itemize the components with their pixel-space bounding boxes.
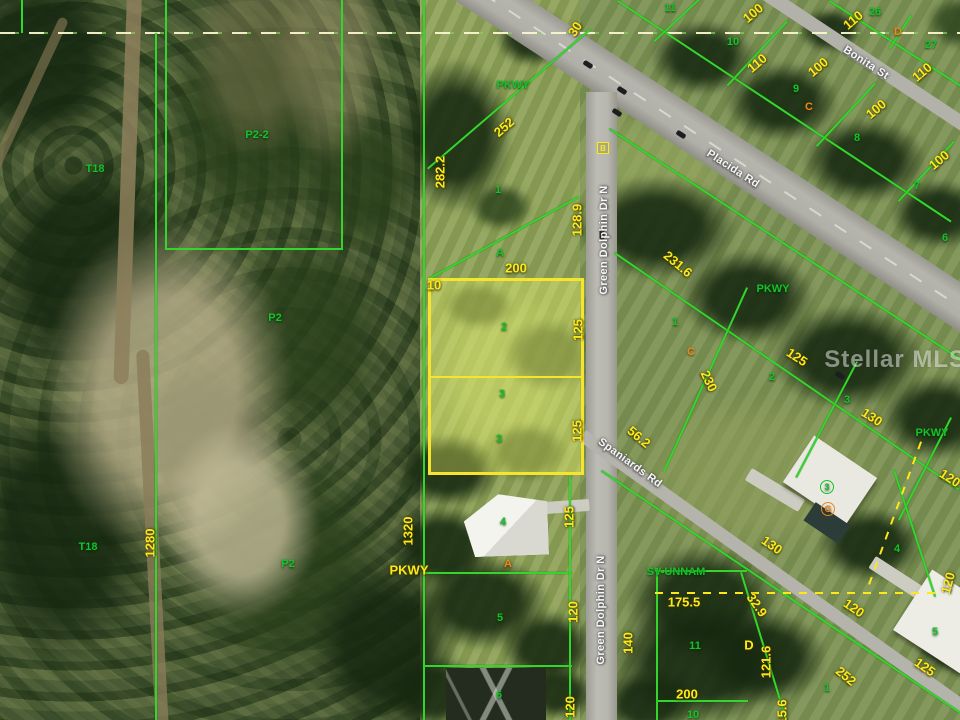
parcel-label-pkwy: PKWY [916, 427, 949, 439]
dimension-label-121.6: 121.6 [759, 646, 774, 679]
road-label-green-dolphin-dr-n: Green Dolphin Dr N [595, 555, 607, 664]
dimension-label-1280: 1280 [143, 529, 158, 558]
dimension-label-1320: 1320 [401, 517, 416, 546]
aerial-parcel-map: Placida RdBonita StGreen Dolphin Dr NGre… [0, 0, 960, 720]
parcel-label-pkwy: PKWY [497, 79, 530, 91]
parcel-label-2: 2 [769, 371, 775, 383]
parcel-boundary-line [155, 33, 157, 720]
parcel-label-t18: T18 [86, 163, 105, 175]
parcel-label-1: 1 [824, 682, 830, 694]
road-marker-b: B [597, 142, 609, 154]
parcel-label-11: 11 [664, 2, 676, 14]
parcel-label-3: 3 [844, 394, 850, 406]
section-line-dashed [0, 32, 960, 34]
plat-marker-c: C [687, 346, 695, 358]
parcel-label-3: 3 [496, 433, 502, 445]
parcel-label-11: 11 [689, 640, 701, 652]
plat-marker-g: G [821, 502, 835, 516]
dimension-label-120: 120 [563, 696, 578, 718]
parcel-label-1: 1 [495, 184, 501, 196]
plat-marker-a: A [504, 558, 512, 570]
parcel-label-t18: T18 [79, 541, 98, 553]
stellar-mls-watermark: Stellar MLS [824, 346, 960, 374]
parcel-label-4: 4 [894, 543, 900, 555]
dimension-label-125: 125 [562, 506, 577, 528]
dimension-label-125: 125 [570, 420, 585, 442]
dimension-label-175.5: 175.5 [668, 595, 701, 610]
parcel-label-pkwy: PKWY [757, 283, 790, 295]
dimension-label-128.9: 128.9 [570, 204, 585, 237]
dimension-label-120: 120 [566, 601, 581, 623]
parcel-label-3: 3 [820, 480, 834, 494]
parcel-outline-p2-2 [165, 0, 343, 250]
parcel-label-1: 1 [672, 316, 678, 328]
dimension-label-282.2: 282.2 [433, 156, 448, 189]
parcel-boundary-line [656, 568, 658, 720]
parcel-label-6: 6 [496, 689, 502, 701]
parcel-label-p2-2: P2-2 [245, 129, 268, 141]
parcel-boundary-line [21, 0, 23, 33]
subject-parcel-split-line [431, 376, 581, 378]
plat-marker-d: D [894, 26, 902, 38]
parcel-boundary-line [425, 665, 572, 667]
parcel-label-3: 3 [499, 388, 505, 400]
parcel-label-2: 2 [501, 321, 507, 333]
parcel-label-5: 5 [932, 626, 938, 638]
dimension-label-10: 10 [427, 278, 441, 293]
dimension-label-200: 200 [676, 687, 698, 702]
parcel-label-sv-unnam: SV-UNNAM [647, 566, 706, 578]
dimension-label-d: D [744, 638, 753, 653]
parcel-label-27: 27 [925, 39, 937, 51]
parcel-boundary-line [658, 700, 748, 702]
parcel-label-10: 10 [687, 709, 699, 720]
parcel-label-p2: P2 [268, 312, 281, 324]
parcel-label-9: 9 [793, 83, 799, 95]
parcel-label-p2: P2 [281, 558, 294, 570]
parcel-label-4: 4 [500, 516, 506, 528]
parcel-boundary-line [425, 572, 572, 574]
dimension-label-15.6: 15.6 [775, 699, 790, 720]
road-label-green-dolphin-dr-n: Green Dolphin Dr N [598, 185, 610, 294]
plat-marker-c: C [805, 101, 813, 113]
dimension-label-pkwy: PKWY [390, 563, 429, 578]
dimension-label-125: 125 [571, 319, 586, 341]
parcel-label-6: 6 [942, 232, 948, 244]
parcel-label-5: 5 [497, 612, 503, 624]
parcel-label-8: 8 [854, 132, 860, 144]
parcel-label-7: 7 [914, 180, 920, 192]
dimension-label-200: 200 [505, 261, 527, 276]
parcel-boundary-line [423, 0, 425, 720]
parcel-label-10: 10 [727, 36, 739, 48]
dimension-label-140: 140 [621, 632, 636, 654]
highlighted-subject-parcel [428, 278, 584, 475]
parcel-label-26: 26 [869, 6, 881, 18]
tree-cluster [160, 420, 320, 620]
parcel-label-a: A [496, 247, 504, 259]
